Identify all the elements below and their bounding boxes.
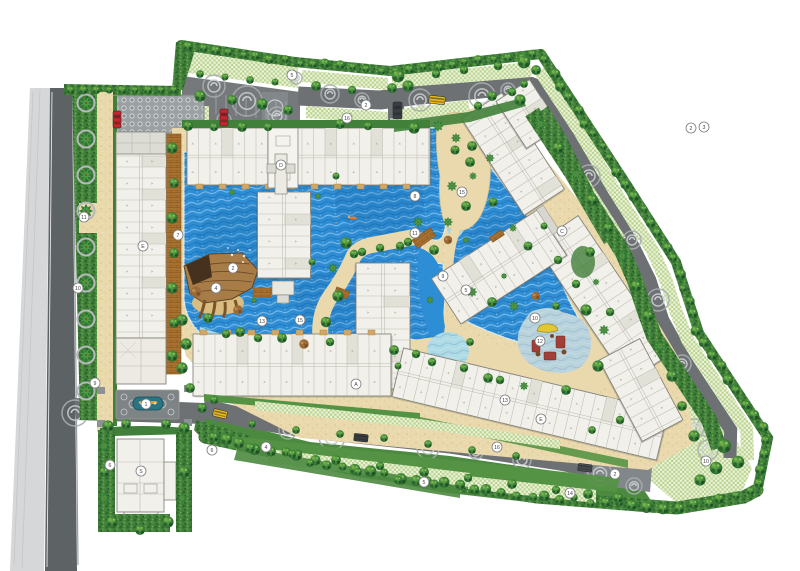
svg-text:D: D (279, 163, 283, 169)
svg-text:16: 16 (344, 116, 350, 122)
svg-text:5: 5 (465, 288, 468, 294)
svg-text:13: 13 (502, 398, 508, 404)
svg-text:11: 11 (81, 215, 86, 221)
svg-text:13: 13 (259, 319, 265, 325)
svg-text:9: 9 (94, 381, 97, 387)
svg-text:6: 6 (109, 463, 112, 469)
svg-text:4: 4 (265, 445, 268, 451)
svg-text:2: 2 (614, 472, 617, 478)
svg-text:5: 5 (423, 480, 426, 486)
svg-text:5: 5 (291, 73, 294, 79)
svg-text:10: 10 (532, 316, 538, 322)
svg-text:11: 11 (412, 231, 417, 237)
svg-text:7: 7 (177, 233, 180, 239)
svg-text:2: 2 (365, 103, 368, 109)
svg-text:A: A (354, 382, 358, 388)
svg-text:S: S (139, 469, 143, 475)
svg-text:2: 2 (232, 266, 235, 272)
svg-text:9: 9 (442, 274, 445, 280)
svg-text:10: 10 (703, 459, 709, 465)
svg-text:3: 3 (703, 125, 706, 131)
svg-text:15: 15 (297, 318, 303, 324)
svg-text:2: 2 (690, 126, 693, 132)
svg-text:C: C (560, 229, 564, 235)
svg-text:E: E (141, 244, 145, 250)
svg-text:15: 15 (459, 190, 465, 196)
svg-text:14: 14 (567, 491, 573, 497)
svg-text:8: 8 (414, 194, 417, 200)
svg-text:10: 10 (75, 286, 81, 292)
svg-text:4: 4 (215, 286, 218, 292)
svg-text:16: 16 (494, 445, 500, 451)
svg-text:1: 1 (145, 402, 148, 408)
svg-text:12: 12 (537, 339, 543, 345)
svg-text:E: E (539, 417, 543, 423)
svg-text:6: 6 (211, 448, 214, 454)
